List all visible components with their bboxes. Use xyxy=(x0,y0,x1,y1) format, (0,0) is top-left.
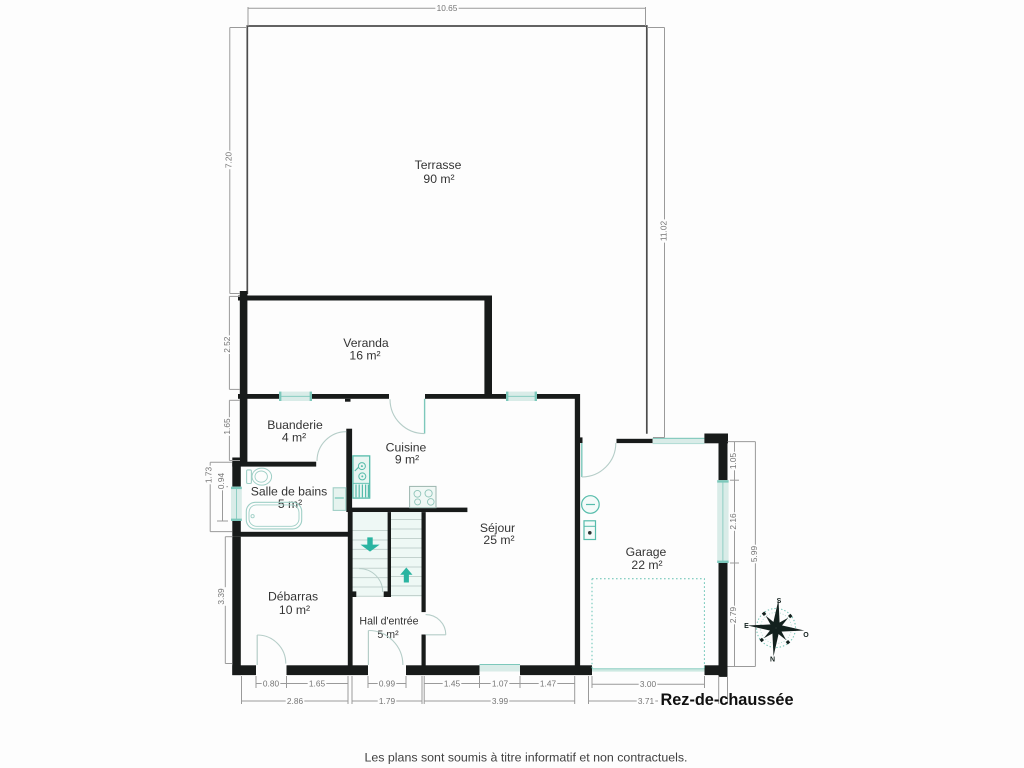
svg-text:3.00: 3.00 xyxy=(640,679,657,689)
svg-text:1.47: 1.47 xyxy=(540,678,557,688)
svg-text:1.65: 1.65 xyxy=(222,418,232,435)
svg-text:O: O xyxy=(803,632,809,639)
svg-text:2.79: 2.79 xyxy=(728,607,738,624)
svg-text:Débarras: Débarras xyxy=(268,589,318,603)
svg-text:11.02: 11.02 xyxy=(658,221,668,242)
svg-text:S: S xyxy=(777,598,782,605)
svg-text:3.99: 3.99 xyxy=(492,696,509,706)
svg-text:0.94: 0.94 xyxy=(216,473,226,490)
svg-text:1.05: 1.05 xyxy=(728,453,738,470)
svg-text:Hall d'entrée: Hall d'entrée xyxy=(359,615,418,627)
svg-text:16 m²: 16 m² xyxy=(349,349,380,363)
svg-text:3.71: 3.71 xyxy=(638,696,655,706)
svg-text:3.39: 3.39 xyxy=(216,588,226,605)
svg-text:Rez-de-chaussée: Rez-de-chaussée xyxy=(660,691,793,709)
svg-text:1.65: 1.65 xyxy=(309,678,326,688)
svg-text:9 m²: 9 m² xyxy=(395,452,419,466)
svg-text:5.99: 5.99 xyxy=(749,546,759,563)
svg-text:25 m²: 25 m² xyxy=(483,533,514,547)
svg-text:2.16: 2.16 xyxy=(728,513,738,530)
svg-text:4 m²: 4 m² xyxy=(282,431,306,445)
svg-text:N: N xyxy=(770,657,775,664)
svg-text:1.73: 1.73 xyxy=(203,467,213,484)
svg-text:22 m²: 22 m² xyxy=(631,558,662,572)
svg-text:1.79: 1.79 xyxy=(379,696,396,706)
svg-text:0.80: 0.80 xyxy=(263,678,280,688)
svg-text:0.99: 0.99 xyxy=(379,678,396,688)
svg-text:1.07: 1.07 xyxy=(492,678,509,688)
svg-text:2.86: 2.86 xyxy=(287,696,304,706)
svg-text:Terrasse: Terrasse xyxy=(415,158,462,172)
svg-text:1.45: 1.45 xyxy=(444,678,461,688)
svg-text:Garage: Garage xyxy=(626,545,667,559)
svg-text:7.20: 7.20 xyxy=(224,152,234,169)
svg-text:Les plans sont soumis à titre: Les plans sont soumis à titre informatif… xyxy=(364,751,687,765)
svg-text:90 m²: 90 m² xyxy=(423,172,454,186)
svg-text:10.65: 10.65 xyxy=(437,3,458,13)
svg-text:E: E xyxy=(744,623,749,630)
svg-text:5 m²: 5 m² xyxy=(377,629,399,641)
svg-text:2.52: 2.52 xyxy=(222,336,232,353)
svg-text:10 m²: 10 m² xyxy=(279,603,310,617)
